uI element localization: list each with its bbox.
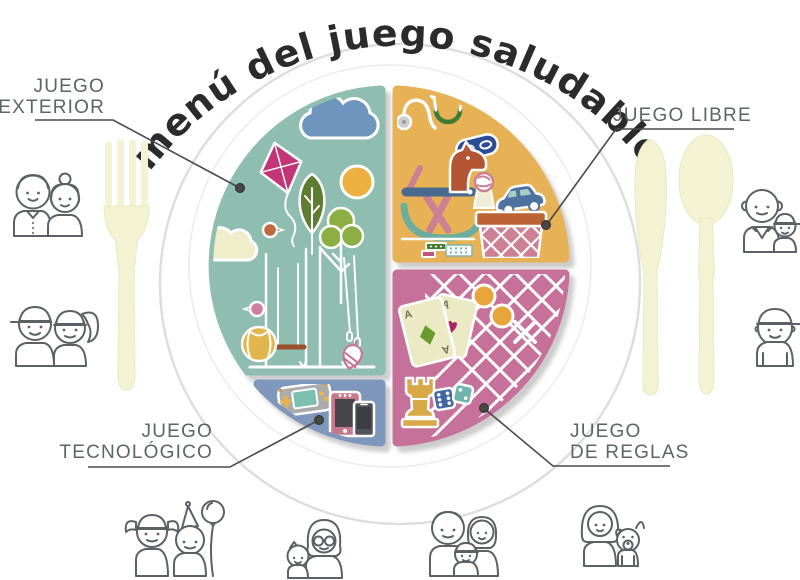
marker-dot-reglas <box>480 404 489 413</box>
couple-adults-icon <box>14 174 82 237</box>
grandmother-with-child-icon <box>288 520 343 578</box>
marker-dot-tecnologico <box>315 416 324 425</box>
label-juego-de-reglas-line2: DE REGLAS <box>570 442 690 463</box>
label-juego-libre: JUEGO LIBRE <box>613 105 752 126</box>
spoon-icon <box>679 135 733 394</box>
fork-icon <box>104 143 149 390</box>
infographic-healthy-play-menu: menú del juego saludable <box>0 0 800 580</box>
marker-dot-libre <box>542 221 551 230</box>
smartphone-icon <box>354 402 374 436</box>
boy-with-cap-icon <box>756 309 800 366</box>
label-juego-exterior-line1: JUEGO <box>34 76 105 97</box>
grandfather-with-child-icon <box>742 190 800 252</box>
sun-icon <box>341 166 373 198</box>
label-juego-tecnologico-line1: JUEGO <box>142 421 213 442</box>
label-juego-exterior-line2: EXTERIOR <box>0 97 105 118</box>
rattle-icon <box>474 173 494 208</box>
playing-cards-icon: A A A <box>398 293 478 367</box>
building-blocks-icon <box>422 243 472 257</box>
infographic-canvas: menú del juego saludable <box>0 0 800 580</box>
label-juego-de-reglas-line1: JUEGO <box>570 421 641 442</box>
family-of-three-icon <box>430 512 498 576</box>
beach-ball-icon <box>242 327 276 361</box>
label-juego-tecnologico-line2: TECNOLÓGICO <box>59 441 213 463</box>
marker-dot-exterior <box>236 184 245 193</box>
girl-and-boy-with-balloon-icon <box>126 501 224 576</box>
kids-pair-icon <box>11 307 98 366</box>
woman-with-dog-icon <box>582 506 644 566</box>
